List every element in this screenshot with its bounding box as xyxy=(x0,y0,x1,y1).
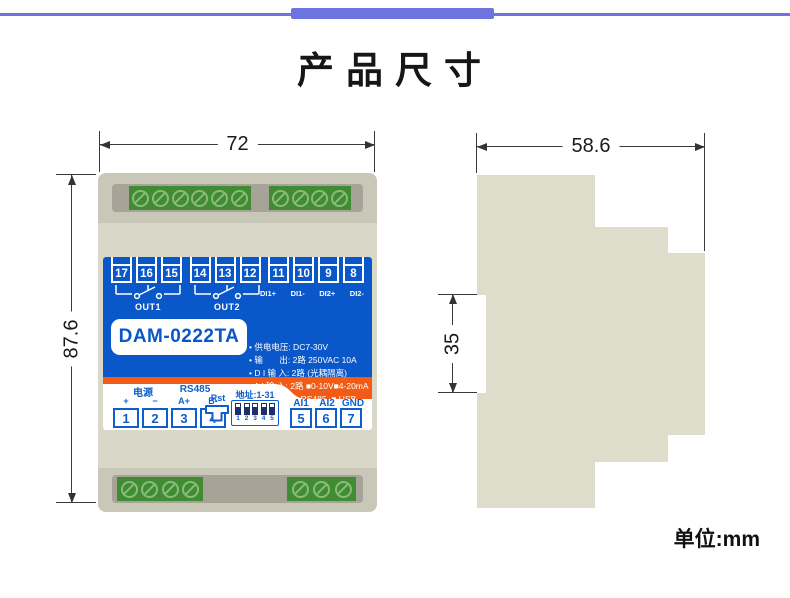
arrow-left-icon xyxy=(477,143,487,151)
top-terminal-strip xyxy=(98,173,377,223)
screw-icon xyxy=(335,481,352,498)
terminal-group-di: 111098 xyxy=(268,264,364,283)
terminal-number: 11 xyxy=(268,264,289,283)
din-rail-notch xyxy=(477,295,486,393)
relay-symbol-out1: OUT1 xyxy=(111,285,185,312)
screw-icon xyxy=(182,481,199,498)
screw-icon xyxy=(231,190,248,207)
dip-switch: 12345 xyxy=(231,400,279,426)
dimension-value: 87.6 xyxy=(61,312,84,367)
screw-icon xyxy=(272,190,289,207)
arrow-up-icon xyxy=(449,294,457,304)
screw-icon xyxy=(311,190,328,207)
front-panel: 171615 141312 111098 O xyxy=(103,257,372,430)
terminal-block xyxy=(287,477,356,501)
pin-label: − xyxy=(142,396,168,406)
terminal-number: 8 xyxy=(343,264,364,283)
pin-label: + xyxy=(113,396,139,406)
screw-icon xyxy=(292,190,309,207)
dip-numbers: 12345 xyxy=(235,415,275,422)
bottom-terminal-strip xyxy=(98,468,377,512)
terminal-number: 17 xyxy=(111,264,132,283)
terminal-number: 9 xyxy=(318,264,339,283)
terminal-number: 1 xyxy=(113,408,139,428)
screw-icon xyxy=(162,481,179,498)
spec-line: • D I 输 入: 2路 (光耦隔离) xyxy=(249,367,369,380)
dimension-value: 72 xyxy=(217,133,257,156)
terminal-number: 13 xyxy=(215,264,236,283)
terminal-number: 5 xyxy=(290,408,312,428)
dip-switch-slot xyxy=(235,403,241,415)
extension-line xyxy=(438,392,478,393)
spec-line: • 供电电压: DC7-30V xyxy=(249,341,369,354)
dimension-width-front: 72 xyxy=(100,138,375,152)
dip-switch-slot xyxy=(252,403,258,415)
extension-line xyxy=(374,131,375,172)
side-view-step2 xyxy=(668,253,705,435)
terminal-number: 12 xyxy=(240,264,261,283)
screw-icon xyxy=(172,190,189,207)
screw-icon xyxy=(292,481,309,498)
extension-line xyxy=(438,294,478,295)
model-badge: DAM-0222TA xyxy=(111,319,247,355)
screw-icon xyxy=(331,190,348,207)
terminal-recess xyxy=(112,475,363,503)
di-label: DI1- xyxy=(291,289,305,298)
dip-number: 1 xyxy=(235,415,241,422)
screw-icon xyxy=(313,481,330,498)
di-label: DI1+ xyxy=(260,289,276,298)
page-title: 产品尺寸 xyxy=(0,40,790,94)
dip-number: 2 xyxy=(244,415,250,422)
di-labels-row: DI1+DI1-DI2+DI2- xyxy=(260,289,364,298)
dip-number: 4 xyxy=(261,415,267,422)
top-terminal-row: 171615 141312 111098 xyxy=(111,264,364,283)
terminal-group-out2: 141312 xyxy=(190,264,261,283)
side-view-body xyxy=(477,175,595,508)
product-dimensions-diagram: 产品尺寸 72 87.6 58.6 35 xyxy=(0,0,790,598)
relay-label: OUT1 xyxy=(111,302,185,312)
dimension-rail-side: 35 xyxy=(446,294,460,393)
dimension-height-front: 87.6 xyxy=(65,175,79,503)
screw-icon xyxy=(121,481,138,498)
terminal-number: 14 xyxy=(190,264,211,283)
extension-line xyxy=(56,502,96,503)
reset-button-icon xyxy=(204,405,230,422)
screw-icon xyxy=(152,190,169,207)
terminal-number: 3 xyxy=(171,408,197,428)
terminal-group-out1: 171615 xyxy=(111,264,182,283)
terminal-recess xyxy=(112,184,363,212)
terminal-number: 7 xyxy=(340,408,362,428)
accent-rule-center xyxy=(291,8,494,19)
terminal-block xyxy=(269,186,351,210)
dip-switch-slot xyxy=(261,403,267,415)
dimension-value: 58.6 xyxy=(563,135,620,158)
relay-contact-icon xyxy=(111,285,185,301)
di-label: DI2+ xyxy=(319,289,335,298)
screw-icon xyxy=(211,190,228,207)
dip-switch-slot xyxy=(244,403,250,415)
di-label: DI2- xyxy=(350,289,364,298)
right-terminal-cells: 567 xyxy=(290,408,362,428)
terminal-block xyxy=(117,477,203,501)
dip-number: 3 xyxy=(252,415,258,422)
dimension-value: 35 xyxy=(442,324,465,362)
terminal-block xyxy=(129,186,251,210)
arrow-left-icon xyxy=(100,141,110,149)
front-view: 171615 141312 111098 O xyxy=(98,173,377,512)
terminal-number: 6 xyxy=(315,408,337,428)
screw-icon xyxy=(132,190,149,207)
relay-contact-icon xyxy=(190,285,264,301)
pin-label: A+ xyxy=(171,396,197,406)
terminal-number: 15 xyxy=(161,264,182,283)
dip-slots xyxy=(235,403,275,415)
screw-icon xyxy=(191,190,208,207)
extension-line xyxy=(704,133,705,251)
spec-line: • 输 出: 2路 250VAC 10A xyxy=(249,354,369,367)
extension-line xyxy=(476,133,477,173)
terminal-number: 16 xyxy=(136,264,157,283)
screw-icon xyxy=(141,481,158,498)
arrow-up-icon xyxy=(68,175,76,185)
dimension-depth-side: 58.6 xyxy=(477,140,705,154)
terminal-number: 2 xyxy=(142,408,168,428)
dip-number: 5 xyxy=(269,415,275,422)
side-view-step1 xyxy=(595,227,668,462)
extension-line xyxy=(99,131,100,172)
unit-label: 单位:mm xyxy=(610,523,760,553)
dip-switch-slot xyxy=(269,403,275,415)
extension-line xyxy=(56,174,96,175)
terminal-number: 10 xyxy=(293,264,314,283)
